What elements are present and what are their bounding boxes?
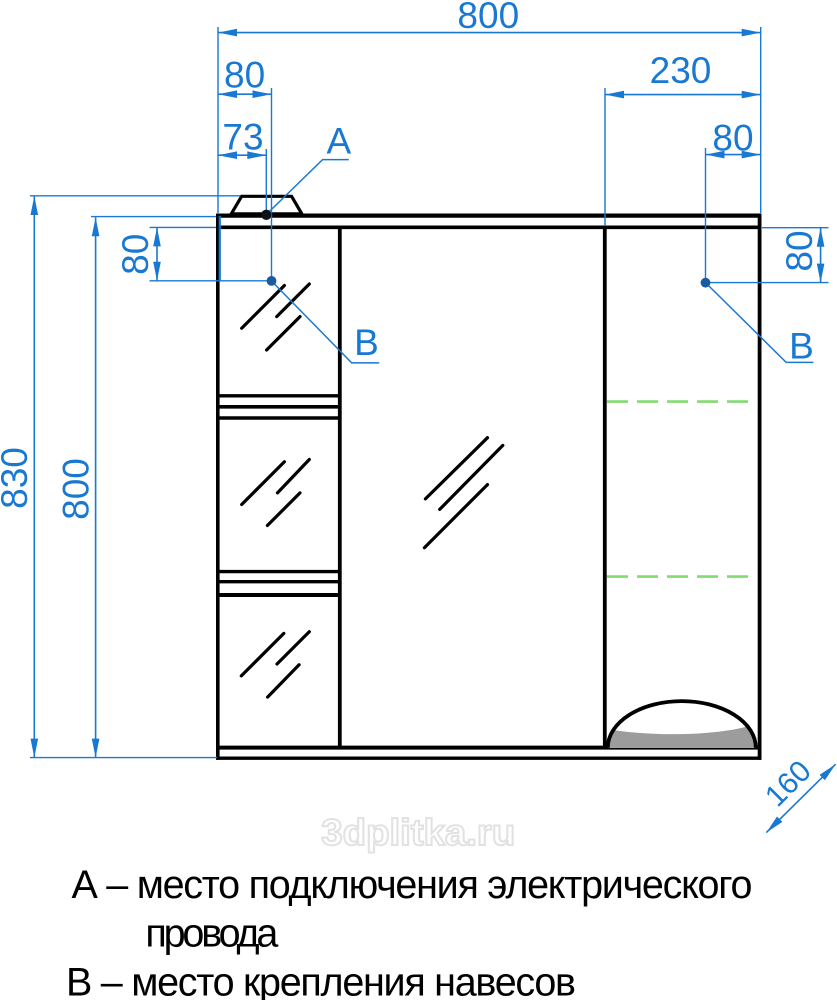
- svg-text:В – место крепления навесов: В – место крепления навесов: [66, 961, 576, 1000]
- svg-text:73: 73: [222, 117, 263, 158]
- svg-text:830: 830: [0, 447, 35, 509]
- svg-text:А: А: [326, 121, 351, 162]
- svg-text:А – место подключения электрич: А – место подключения электрического: [72, 863, 753, 907]
- svg-text:В: В: [789, 326, 814, 367]
- svg-text:160: 160: [759, 754, 818, 813]
- svg-text:3dplitka.ru: 3dplitka.ru: [321, 812, 515, 853]
- svg-text:230: 230: [650, 50, 712, 91]
- svg-text:80: 80: [779, 230, 820, 271]
- svg-text:800: 800: [457, 0, 519, 36]
- svg-text:80: 80: [712, 118, 753, 159]
- svg-text:80: 80: [115, 234, 156, 275]
- svg-text:80: 80: [224, 55, 265, 96]
- svg-text:В: В: [354, 322, 379, 363]
- svg-text:800: 800: [55, 458, 96, 520]
- svg-text:провода: провода: [145, 911, 278, 955]
